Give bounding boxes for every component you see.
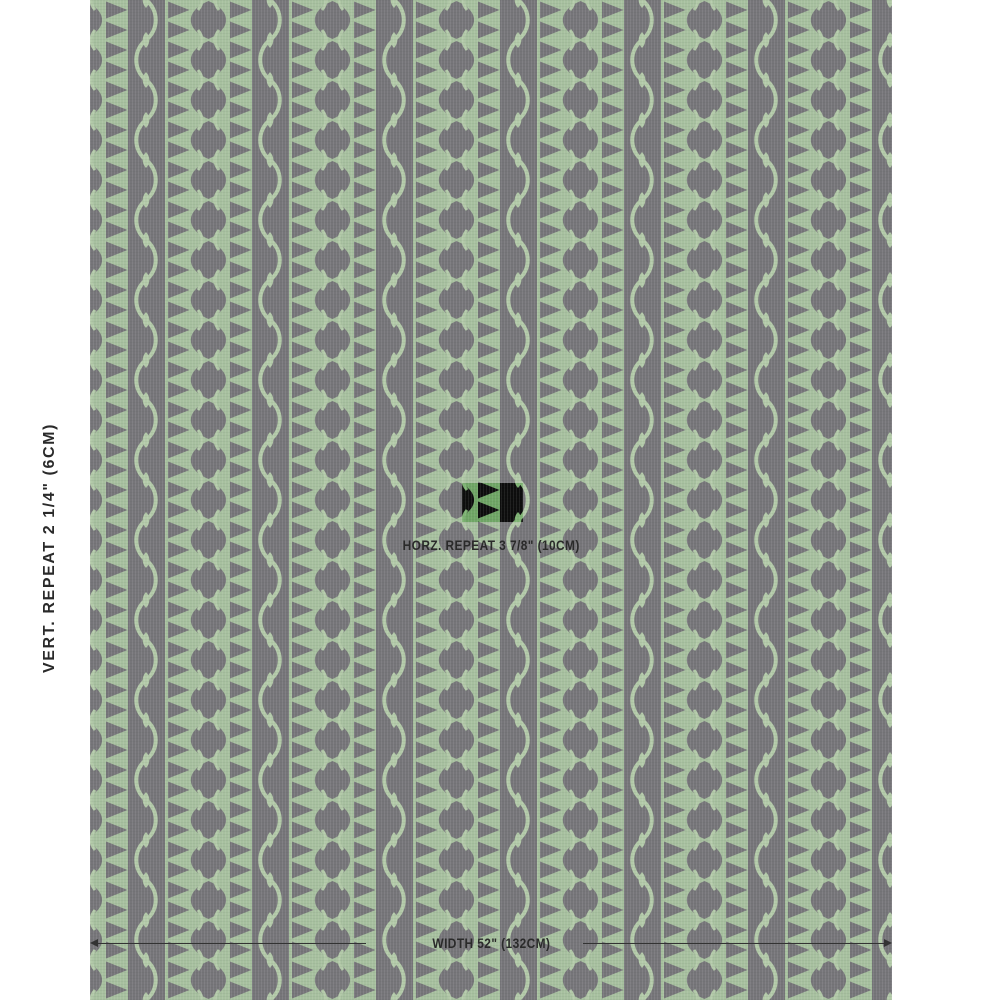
width-text: WIDTH 52" (132CM)	[432, 935, 550, 951]
horizontal-repeat-label: HORZ. REPEAT 3 7/8" (10CM)	[90, 537, 892, 553]
vertical-repeat-label: VERT. REPEAT 2 1/4" (6CM)	[41, 423, 59, 673]
vertical-repeat-text: VERT. REPEAT 2 1/4" (6CM)	[41, 423, 59, 673]
dimension-arrow-right-icon	[884, 939, 892, 947]
horizontal-repeat-indicator	[462, 483, 523, 522]
product-image: VERT. REPEAT 2 1/4" (6CM) HORZ. REPEAT 3…	[0, 0, 1000, 1000]
width-dimension-line-right	[583, 943, 886, 944]
horizontal-repeat-text: HORZ. REPEAT 3 7/8" (10CM)	[402, 537, 579, 553]
